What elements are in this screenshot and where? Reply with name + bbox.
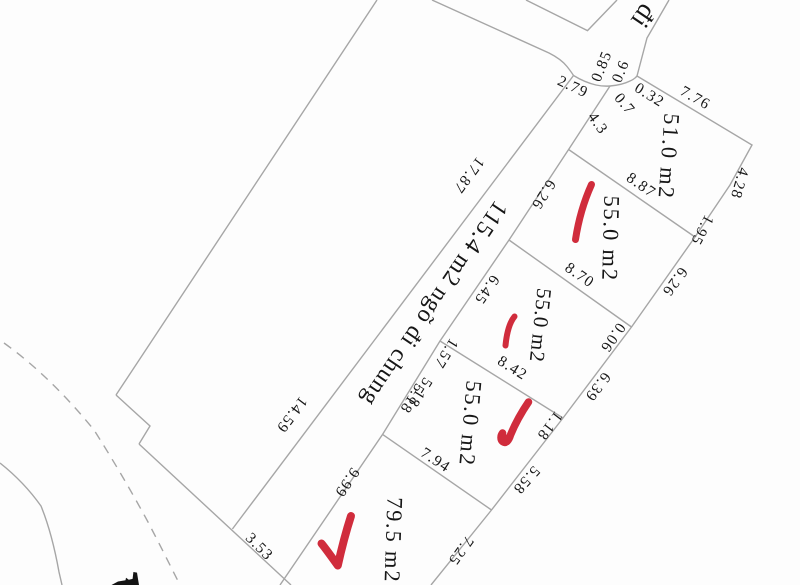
svg-text:79.5 m2: 79.5 m2: [379, 497, 407, 584]
svg-text:55.0 m2: 55.0 m2: [597, 195, 624, 282]
